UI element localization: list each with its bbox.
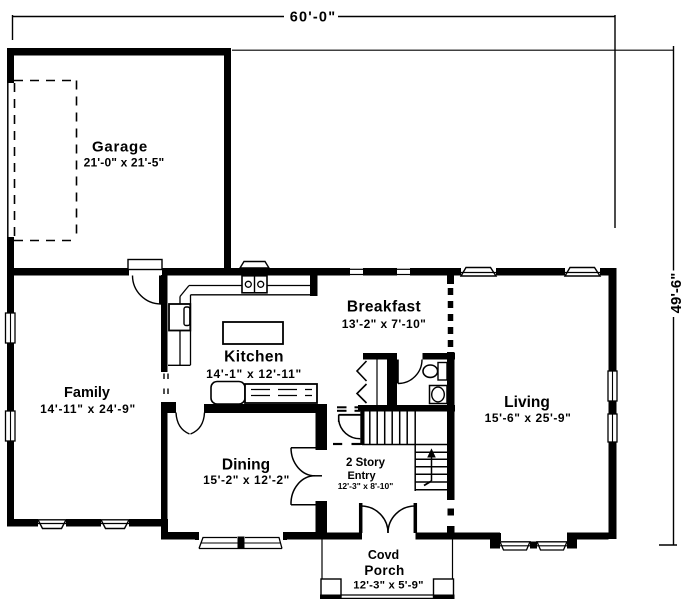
- svg-text:13'-2" x 7'-10": 13'-2" x 7'-10": [342, 317, 426, 331]
- svg-text:Dining: Dining: [222, 457, 270, 474]
- svg-text:49'-6": 49'-6": [668, 273, 685, 314]
- svg-text:14'-11" x 24'-9": 14'-11" x 24'-9": [40, 402, 136, 416]
- svg-text:15'-6" x 25'-9": 15'-6" x 25'-9": [485, 411, 572, 425]
- svg-text:12'-3" x 8'-10": 12'-3" x 8'-10": [338, 481, 394, 491]
- svg-text:Living: Living: [504, 394, 550, 411]
- svg-text:Family: Family: [64, 385, 110, 401]
- svg-text:21'-0" x 21'-5": 21'-0" x 21'-5": [84, 156, 165, 170]
- svg-text:Breakfast: Breakfast: [347, 299, 421, 316]
- svg-text:14'-1" x 12'-11": 14'-1" x 12'-11": [206, 367, 302, 381]
- svg-text:15'-2" x 12'-2": 15'-2" x 12'-2": [203, 473, 290, 487]
- svg-text:Porch: Porch: [364, 563, 404, 578]
- svg-text:Garage: Garage: [92, 139, 148, 156]
- svg-text:Kitchen: Kitchen: [224, 349, 284, 366]
- svg-text:12'-3" x 5'-9": 12'-3" x 5'-9": [353, 580, 423, 592]
- svg-text:Covd: Covd: [368, 548, 399, 562]
- svg-text:60'-0": 60'-0": [290, 10, 337, 26]
- svg-text:2 Story: 2 Story: [346, 457, 386, 469]
